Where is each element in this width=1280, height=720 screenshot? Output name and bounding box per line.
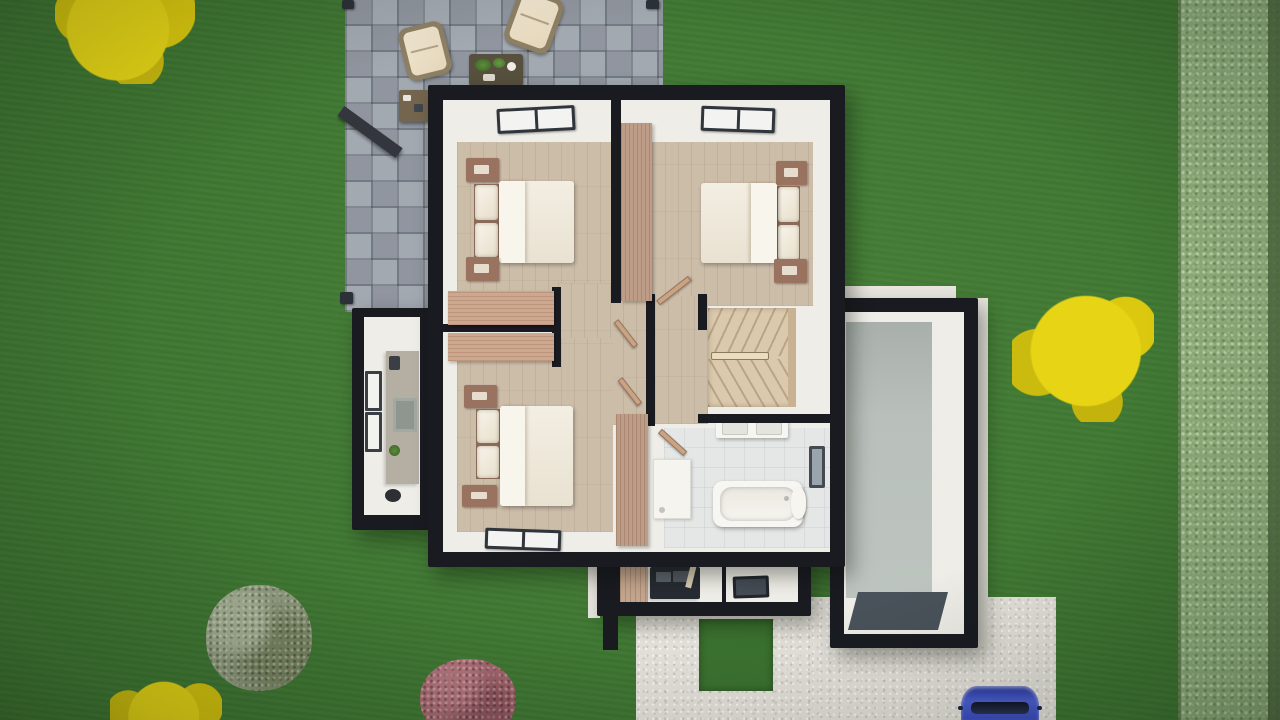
garage-interior: [844, 312, 964, 634]
stair-treads-upper: [708, 308, 796, 356]
stair-stringer: [788, 308, 796, 407]
kitchenette-interior: [364, 317, 420, 515]
partition-wall: [443, 324, 555, 332]
sideboard-item: [414, 104, 423, 112]
stair-treads-lower: [708, 359, 796, 407]
skylight: [733, 575, 770, 598]
pergola-post: [646, 0, 659, 9]
pillow: [778, 225, 799, 260]
tub-drain: [784, 496, 789, 501]
bed-sheet: [751, 183, 777, 263]
toaster: [389, 356, 400, 370]
nightstand: [774, 259, 807, 283]
garage-floor-mat: [848, 592, 948, 630]
patio-sideboard: [399, 90, 429, 122]
nightstand: [464, 385, 497, 408]
wardrobe: [621, 123, 652, 301]
kitchen-counter: [386, 351, 419, 484]
sideboard-item: [403, 95, 411, 101]
window-pane: [704, 109, 737, 129]
chair-cushion: [508, 0, 560, 50]
table-item: [483, 74, 495, 81]
pillow: [475, 223, 498, 258]
potted-plant: [493, 58, 505, 68]
window-pane: [488, 531, 522, 547]
car-mirror-left: [958, 706, 963, 710]
plate: [507, 62, 516, 71]
nightstand: [776, 161, 807, 185]
lounge-chair: [396, 19, 454, 83]
sink-basin: [722, 422, 748, 435]
bathtub: [713, 481, 803, 527]
partition-wall: [611, 85, 621, 303]
red-bush: [420, 659, 516, 720]
window: [365, 412, 382, 452]
potted-plant: [389, 445, 400, 456]
pergola-post: [340, 292, 353, 304]
kitchen-sink: [393, 398, 417, 432]
tub-basin: [720, 487, 796, 521]
garage-annex: [830, 298, 978, 648]
nightstand: [462, 485, 497, 507]
lounge-chair: [502, 0, 567, 56]
driveway-grass-inset: [699, 619, 773, 691]
counter-item: [656, 572, 671, 582]
pergola-post: [342, 0, 354, 9]
shower-tray: [653, 459, 691, 519]
patio-coffee-table: [469, 54, 523, 86]
lower-room-kitchen: [620, 564, 722, 602]
window-pane: [739, 110, 772, 130]
yellow-tree: [55, 0, 195, 84]
bed-pillows: [474, 184, 499, 258]
pillow: [477, 410, 499, 443]
window: [365, 371, 382, 411]
house-interior: [443, 100, 830, 552]
chair-cushion: [402, 25, 448, 76]
partition-wall: [698, 294, 707, 330]
wardrobe: [616, 414, 648, 546]
bed-mattress: [500, 406, 573, 506]
pillow: [477, 446, 499, 479]
garage-floor: [846, 322, 932, 598]
olive-bush: [206, 585, 312, 691]
sink-basin: [756, 422, 782, 435]
house-outer-walls: [428, 85, 845, 567]
bed-pillows: [476, 409, 500, 479]
yellow-tree: [1012, 280, 1154, 422]
potted-plant: [475, 59, 491, 71]
bed-pillows: [777, 186, 800, 261]
bed-sheet: [500, 406, 525, 506]
hedge: [1178, 0, 1280, 720]
car-windshield: [971, 702, 1029, 714]
wall-post: [603, 612, 618, 650]
kitchenette-annex: [352, 308, 430, 530]
window: [701, 106, 776, 134]
window-pane: [537, 108, 572, 129]
lower-room: [726, 564, 798, 602]
car-mirror-right: [1037, 706, 1042, 710]
cooking-pot: [385, 489, 401, 502]
toilet: [791, 487, 806, 519]
window-pane: [524, 532, 558, 548]
bush-texture: [206, 585, 312, 691]
bed-sheet: [499, 181, 525, 263]
bush-texture: [420, 659, 516, 720]
bed-mattress: [701, 183, 777, 263]
window: [485, 528, 562, 552]
bathroom-mirror: [809, 446, 825, 488]
car: [961, 686, 1039, 720]
pillow: [778, 187, 799, 222]
wood-cabinet: [620, 564, 648, 602]
pillow: [475, 185, 498, 220]
pergola-beam: [337, 106, 402, 158]
partition-wall: [698, 414, 830, 423]
partition-wall: [646, 294, 655, 426]
window: [496, 105, 575, 134]
floor-plan-render: [0, 0, 1280, 720]
bed-mattress: [499, 181, 574, 263]
window-pane: [500, 110, 535, 131]
nightstand: [466, 257, 499, 281]
shower-drain: [659, 507, 665, 513]
hedge-shadow-edge: [1268, 0, 1280, 720]
desk: [448, 333, 554, 361]
stair-railing: [711, 352, 769, 360]
desk: [448, 291, 554, 325]
nightstand: [466, 158, 499, 182]
staircase: [708, 308, 796, 407]
